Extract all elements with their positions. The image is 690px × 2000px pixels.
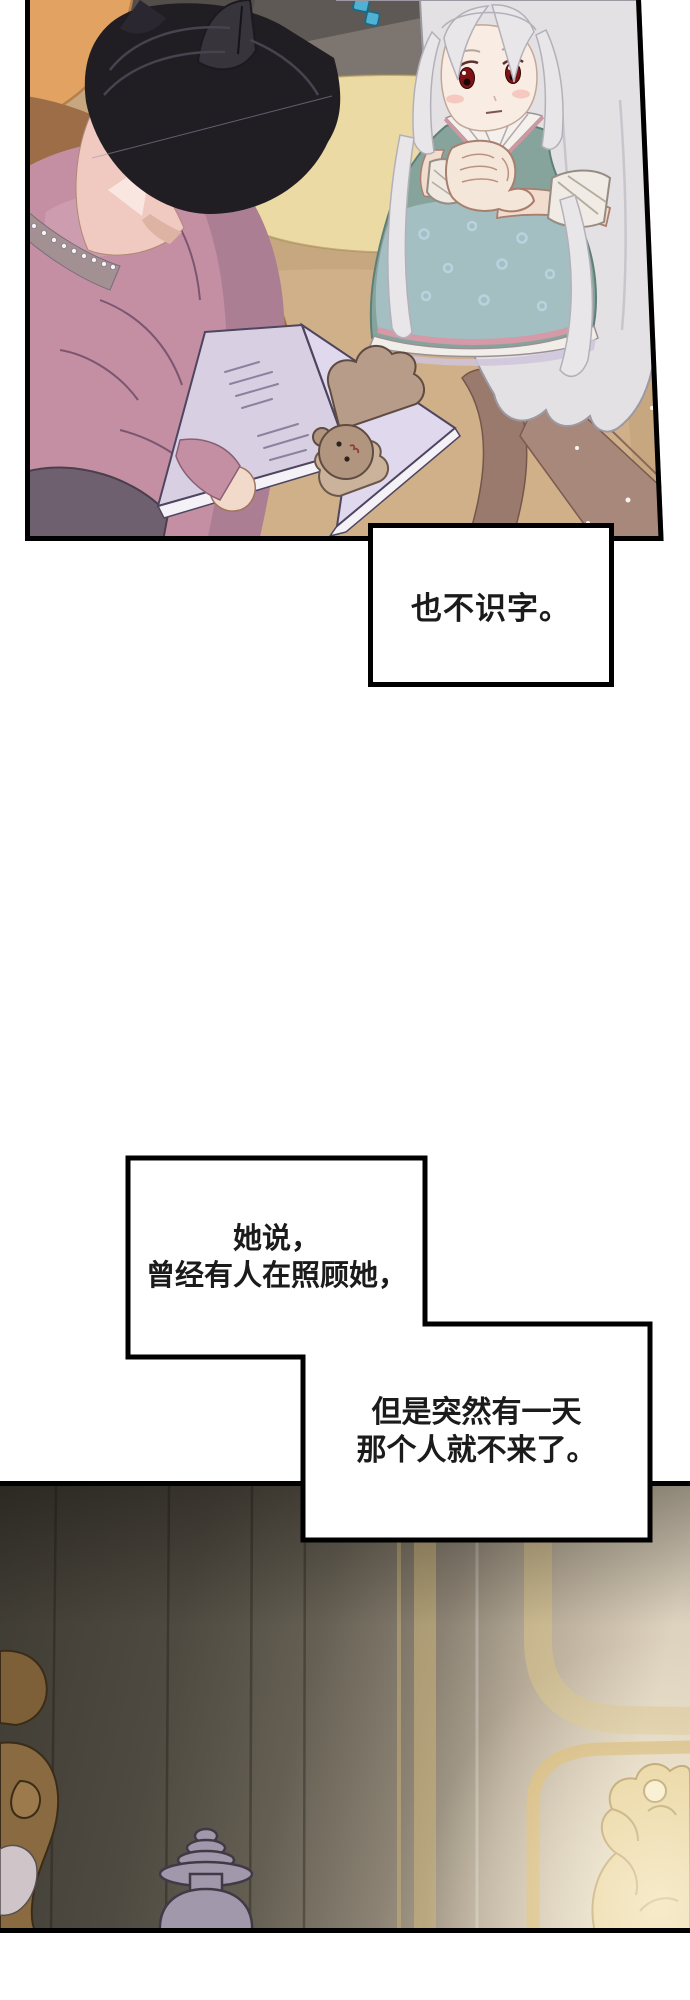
panel-dark-wall-scene xyxy=(0,1481,690,1933)
speech-text-3-line-1: 但是突然有一天 xyxy=(372,1394,582,1432)
bedroom-scene-art xyxy=(0,0,690,546)
speech-text-2: 她说， 曾经有人在照顾她， xyxy=(131,1162,422,1353)
teal-square-decoration xyxy=(365,11,380,26)
speech-text-2-line-1: 她说， xyxy=(233,1221,320,1258)
panel-border-bottom xyxy=(0,1928,690,1933)
speech-text-3: 但是突然有一天 那个人就不来了。 xyxy=(306,1328,647,1535)
wall-scene-art xyxy=(0,1481,690,1933)
webtoon-page: { "page": { "width": 690, "height": 2000… xyxy=(0,0,690,2000)
speech-bubble-1: 也不识字。 xyxy=(368,523,614,687)
speech-text-1: 也不识字。 xyxy=(411,583,571,628)
panel-bedroom-scene xyxy=(0,0,690,546)
speech-text-3-line-2: 那个人就不来了。 xyxy=(357,1432,597,1470)
teal-square-decoration xyxy=(352,0,370,12)
speech-text-2-line-2: 曾经有人在照顾她， xyxy=(146,1258,407,1295)
